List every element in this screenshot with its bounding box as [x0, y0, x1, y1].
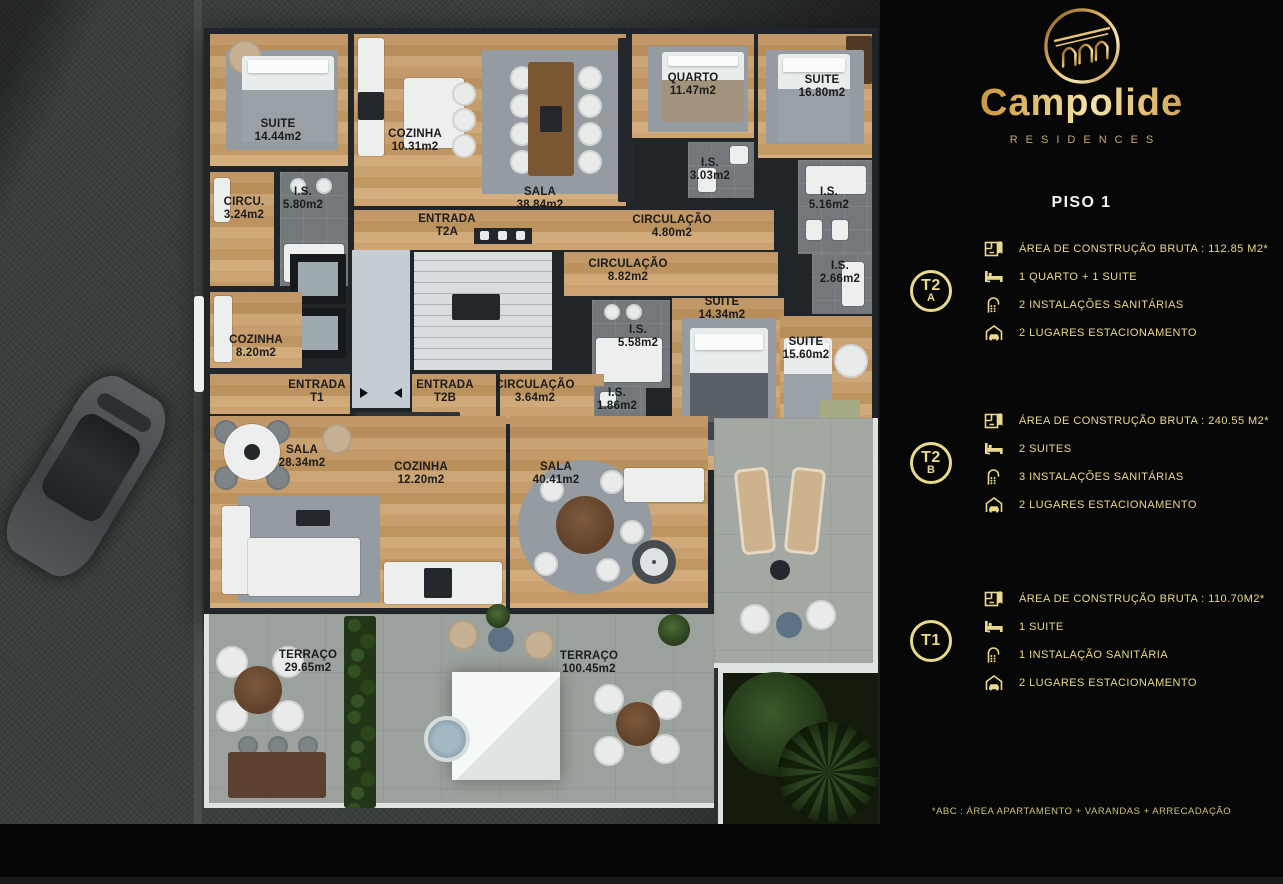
room-area: 5.16m2 — [809, 199, 849, 212]
room-name: ENTRADA — [416, 379, 474, 392]
spec-text: ÁREA DE CONSTRUÇÃO BRUTA : 110.70M2* — [1019, 593, 1265, 605]
room-name: I.S. — [283, 186, 323, 199]
dining-chair — [620, 520, 644, 544]
room-label-is-558: I.S.5.58m2 — [618, 324, 658, 350]
room-name: SUITE — [255, 118, 302, 131]
stove — [358, 92, 384, 120]
room-area: 14.44m2 — [255, 131, 302, 144]
table-centerpiece — [540, 106, 562, 132]
spec-row: 3 INSTALAÇÕES SANITÁRIAS — [984, 468, 1275, 486]
room-area: T2B — [416, 392, 474, 405]
unit-badge-t2a: T2 A — [910, 270, 952, 312]
room-label-suite-1434: SUITE14.34m2 — [699, 296, 746, 322]
shower-icon — [984, 645, 1004, 665]
dining-chair — [578, 66, 602, 90]
unit-t1: T1 ÁREA DE CONSTRUÇÃO BRUTA : 110.70M2* … — [900, 590, 1275, 702]
room-label-quarto-1147: QUARTO11.47m2 — [668, 72, 719, 98]
curb — [194, 0, 202, 824]
outdoor-table — [228, 752, 326, 798]
sofa — [222, 506, 250, 594]
room-name: I.S. — [597, 387, 637, 400]
bed-icon — [984, 439, 1004, 459]
spec-row: 1 INSTALAÇÃO SANITÁRIA — [984, 646, 1275, 664]
spec-row: 2 LUGARES ESTACIONAMENTO — [984, 324, 1275, 342]
floorplan-icon — [984, 239, 1004, 259]
room-area: 4.80m2 — [632, 227, 711, 240]
room-area: 1.86m2 — [597, 400, 637, 413]
coffee-table — [296, 510, 330, 526]
spec-row: 2 SUITES — [984, 440, 1275, 458]
bottom-edge-strip — [0, 877, 1283, 884]
spec-row: ÁREA DE CONSTRUÇÃO BRUTA : 112.85 M2* — [984, 240, 1275, 258]
room-label-suite-1560: SUITE15.60m2 — [783, 336, 830, 362]
dining-chair — [578, 122, 602, 146]
armchair — [740, 604, 770, 634]
room-name: SUITE — [799, 74, 846, 87]
room-area: 3.03m2 — [690, 170, 730, 183]
brand-logo-icon — [1041, 5, 1123, 92]
armchair — [524, 630, 554, 660]
room-name: COZINHA — [388, 128, 442, 141]
lounge-chair — [632, 540, 676, 584]
unit-t2b: T2 B ÁREA DE CONSTRUÇÃO BRUTA : 240.55 M… — [900, 412, 1275, 524]
room-name: CIRCULAÇÃO — [632, 214, 711, 227]
dining-chair — [578, 94, 602, 118]
dining-chair — [578, 150, 602, 174]
room-label-entrada-t1: ENTRADAT1 — [288, 379, 346, 405]
room-area: 8.20m2 — [229, 347, 283, 360]
room-name: SALA — [279, 444, 326, 457]
armchair — [448, 620, 478, 650]
bidet — [832, 220, 848, 240]
toilet — [806, 220, 822, 240]
room-area: 5.80m2 — [283, 199, 323, 212]
room-area: 8.82m2 — [588, 271, 667, 284]
spec-text: 1 QUARTO + 1 SUITE — [1019, 271, 1137, 283]
side-table — [488, 626, 514, 652]
room-area: 16.80m2 — [799, 87, 846, 100]
badge-line1: T2 — [921, 451, 941, 466]
room-label-entrada-t2a: ENTRADAT2A — [418, 213, 476, 239]
lobby — [352, 250, 410, 408]
room-name: ENTRADA — [418, 213, 476, 226]
round-table — [234, 666, 282, 714]
palm-tree — [778, 722, 878, 822]
floorplan-icon — [984, 411, 1004, 431]
round-table — [616, 702, 660, 746]
spec-text: 1 INSTALAÇÃO SANITÁRIA — [1019, 649, 1168, 661]
room-area: T2A — [418, 226, 476, 239]
room-area: 100.45m2 — [560, 663, 618, 676]
stove — [424, 568, 452, 598]
room-label-circu-324: CIRCU.3.24m2 — [224, 196, 265, 222]
room-name: CIRCU. — [224, 196, 265, 209]
footnote: *ABC : ÁREA APARTAMENTO + VARANDAS + ARR… — [880, 806, 1283, 817]
plant — [486, 604, 510, 628]
room-area: 14.34m2 — [699, 309, 746, 322]
room-label-is-580: I.S.5.80m2 — [283, 186, 323, 212]
dining-chair — [534, 552, 558, 576]
room-name: TERRAÇO — [279, 649, 337, 662]
spec-text: 2 LUGARES ESTACIONAMENTO — [1019, 499, 1197, 511]
spec-text: ÁREA DE CONSTRUÇÃO BRUTA : 112.85 M2* — [1019, 243, 1268, 255]
room-label-circulacao-364: CIRCULAÇÃO3.64m2 — [495, 379, 574, 405]
badge-line1: T1 — [921, 634, 941, 649]
fountain — [424, 716, 470, 762]
room-label-cozinha-1031: COZINHA10.31m2 — [388, 128, 442, 154]
spec-text: 2 INSTALAÇÕES SANITÁRIAS — [1019, 299, 1184, 311]
spec-row: 2 LUGARES ESTACIONAMENTO — [984, 496, 1275, 514]
room-label-terraco-2965: TERRAÇO29.65m2 — [279, 649, 337, 675]
room-area: 38.84m2 — [517, 199, 564, 212]
room-name: SALA — [533, 461, 580, 474]
dining-chair — [600, 470, 624, 494]
floorplan-icon — [984, 589, 1004, 609]
unit-badge-t2b: T2 B — [910, 442, 952, 484]
spec-row: 1 QUARTO + 1 SUITE — [984, 268, 1275, 286]
spec-text: 2 SUITES — [1019, 443, 1072, 455]
armchair — [834, 344, 868, 378]
room-name: ENTRADA — [288, 379, 346, 392]
spec-row: 1 SUITE — [984, 618, 1275, 636]
sofa — [624, 468, 704, 502]
unit-t2a: T2 A ÁREA DE CONSTRUÇÃO BRUTA : 112.85 M… — [900, 240, 1275, 352]
floorplan-poster: SUITE14.44m2 COZINHA10.31m2 SALA38.84m2 … — [0, 0, 1283, 884]
room-area: 28.34m2 — [279, 457, 326, 470]
armchair — [806, 600, 836, 630]
spec-row: 2 INSTALAÇÕES SANITÁRIAS — [984, 296, 1275, 314]
room-label-entrada-t2b: ENTRADAT2B — [416, 379, 474, 405]
room-area: 40.41m2 — [533, 474, 580, 487]
bed-icon — [984, 617, 1004, 637]
page-title: PISO 1 — [880, 194, 1283, 212]
spec-row: ÁREA DE CONSTRUÇÃO BRUTA : 240.55 M2* — [984, 412, 1275, 430]
room-name: COZINHA — [229, 334, 283, 347]
room-area: 10.31m2 — [388, 141, 442, 154]
stair-landing — [452, 294, 500, 320]
sink — [626, 304, 642, 320]
hedge-planter — [344, 616, 376, 808]
room-label-terraco-10045: TERRAÇO100.45m2 — [560, 650, 618, 676]
room-name: I.S. — [809, 186, 849, 199]
shower-icon — [984, 467, 1004, 487]
stool — [452, 82, 476, 106]
round-dining-table — [556, 496, 614, 554]
info-panel: Campolide RESIDENCES PISO 1 T2 A ÁREA DE… — [880, 0, 1283, 884]
stool — [452, 108, 476, 132]
room-name: CIRCULAÇÃO — [588, 258, 667, 271]
room-name: SUITE — [699, 296, 746, 309]
room-label-suite-1444: SUITE14.44m2 — [255, 118, 302, 144]
armchair — [322, 424, 352, 454]
badge-line2: B — [927, 465, 935, 475]
room-label-cozinha-1220: COZINHA12.20m2 — [394, 461, 448, 487]
brand-name: Campolide — [880, 82, 1283, 125]
room-area: 3.24m2 — [224, 209, 265, 222]
room-name: I.S. — [820, 260, 860, 273]
room-area: 2.66m2 — [820, 273, 860, 286]
brand-tagline: RESIDENCES — [880, 134, 1283, 146]
garage-icon — [984, 673, 1004, 693]
sink — [604, 304, 620, 320]
shower-icon — [984, 295, 1004, 315]
room-name: I.S. — [618, 324, 658, 337]
room-label-sala-3884: SALA38.84m2 — [517, 186, 564, 212]
spec-text: 2 LUGARES ESTACIONAMENTO — [1019, 327, 1197, 339]
room-label-circulacao-882: CIRCULAÇÃO8.82m2 — [588, 258, 667, 284]
room-area: T1 — [288, 392, 346, 405]
room-label-is-186: I.S.1.86m2 — [597, 387, 637, 413]
spec-text: ÁREA DE CONSTRUÇÃO BRUTA : 240.55 M2* — [1019, 415, 1269, 427]
room-area: 11.47m2 — [668, 85, 719, 98]
shower — [730, 146, 748, 164]
room-name: COZINHA — [394, 461, 448, 474]
spec-text: 1 SUITE — [1019, 621, 1064, 633]
room-label-suite-1680: SUITE16.80m2 — [799, 74, 846, 100]
table-centerpiece — [244, 444, 260, 460]
spec-row: ÁREA DE CONSTRUÇÃO BRUTA : 110.70M2* — [984, 590, 1275, 608]
left-balcony — [194, 296, 204, 392]
spec-text: 3 INSTALAÇÕES SANITÁRIAS — [1019, 471, 1184, 483]
spec-row: 2 LUGARES ESTACIONAMENTO — [984, 674, 1275, 692]
garage-icon — [984, 323, 1004, 343]
room-label-is-303: I.S.3.03m2 — [690, 157, 730, 183]
door-arrow — [394, 388, 402, 398]
room-label-is-266: I.S.2.66m2 — [820, 260, 860, 286]
room-name: SALA — [517, 186, 564, 199]
plant — [658, 614, 690, 646]
room-name: I.S. — [690, 157, 730, 170]
badge-line2: A — [927, 293, 935, 303]
side-table — [770, 560, 790, 580]
sofa — [248, 538, 360, 596]
room-label-sala-4041: SALA40.41m2 — [533, 461, 580, 487]
armchair — [594, 684, 624, 714]
stool — [452, 134, 476, 158]
room-label-cozinha-820: COZINHA8.20m2 — [229, 334, 283, 360]
bottom-band — [0, 824, 880, 884]
room-label-is-516: I.S.5.16m2 — [809, 186, 849, 212]
spec-text: 2 LUGARES ESTACIONAMENTO — [1019, 677, 1197, 689]
room-area: 5.58m2 — [618, 337, 658, 350]
room-area: 15.60m2 — [783, 349, 830, 362]
garage-icon — [984, 495, 1004, 515]
badge-line1: T2 — [921, 279, 941, 294]
door-arrow — [360, 388, 368, 398]
room-name: QUARTO — [668, 72, 719, 85]
room-area: 29.65m2 — [279, 662, 337, 675]
unit-badge-t1: T1 — [910, 620, 952, 662]
room-name: CIRCULAÇÃO — [495, 379, 574, 392]
room-label-circulacao-480: CIRCULAÇÃO4.80m2 — [632, 214, 711, 240]
side-table — [776, 612, 802, 638]
dining-chair — [596, 558, 620, 582]
bed-icon — [984, 267, 1004, 287]
room-area: 12.20m2 — [394, 474, 448, 487]
street-shadow — [0, 0, 202, 260]
room-name: SUITE — [783, 336, 830, 349]
armchair — [594, 736, 624, 766]
pergola — [452, 672, 560, 780]
entry-bench — [474, 228, 532, 244]
room-name: TERRAÇO — [560, 650, 618, 663]
room-area: 3.64m2 — [495, 392, 574, 405]
room-label-sala-2834: SALA28.34m2 — [279, 444, 326, 470]
